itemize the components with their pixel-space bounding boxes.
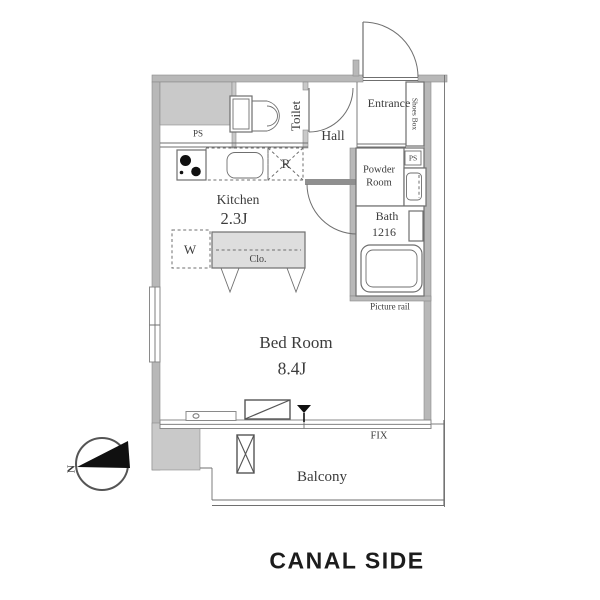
toilet-door-arc — [309, 88, 353, 132]
left-window — [150, 287, 161, 362]
fridge-label: R — [282, 156, 291, 172]
bath-window — [409, 211, 423, 241]
ac-unit — [245, 400, 290, 419]
kitchen-label: Kitchen — [217, 192, 260, 208]
pipe-space-right-label: PS — [409, 154, 417, 163]
kitchen-stove — [177, 150, 206, 180]
closet-door-swings — [221, 268, 305, 292]
pipe-space-left — [160, 82, 232, 125]
bath-size-label: 1216 — [372, 225, 396, 239]
kitchen-sink — [227, 153, 263, 179]
floorplan-canvas: Toilet Hall Entrance Shoes Box PS PS Pow… — [0, 0, 600, 600]
toilet-fixture — [230, 96, 279, 132]
powder-room-label: Powder Room — [363, 164, 395, 189]
bath-label: Bath — [376, 209, 399, 223]
closet-label: Clo. — [250, 254, 267, 266]
balcony-label: Balcony — [297, 468, 347, 486]
compass-north-label: N — [65, 465, 78, 473]
hall-label: Hall — [321, 128, 344, 144]
pipe-space-left-label: PS — [193, 129, 203, 140]
hose-bib-marker — [297, 405, 311, 422]
fix-window-label: FIX — [371, 431, 388, 444]
hall-door-arc — [307, 184, 357, 236]
bottom-window — [160, 412, 431, 429]
entrance-door-arc — [363, 22, 418, 77]
bedroom-size-label: 8.4J — [278, 359, 307, 380]
bedroom-label: Bed Room — [259, 333, 332, 353]
entrance-label: Entrance — [368, 96, 411, 110]
compass-icon — [76, 438, 130, 490]
balcony-partition — [237, 435, 254, 473]
shoes-box-label: Shoes Box — [411, 98, 420, 130]
structural-column — [152, 423, 200, 470]
picture-rail-label: Picture rail — [370, 302, 410, 313]
washbasin — [404, 168, 426, 206]
canal-side-caption: CANAL SIDE — [269, 548, 424, 575]
floorplan-drawing — [0, 0, 600, 600]
washer-label: W — [184, 242, 196, 258]
toilet-label: Toilet — [288, 101, 304, 131]
kitchen-size-label: 2.3J — [220, 209, 247, 229]
